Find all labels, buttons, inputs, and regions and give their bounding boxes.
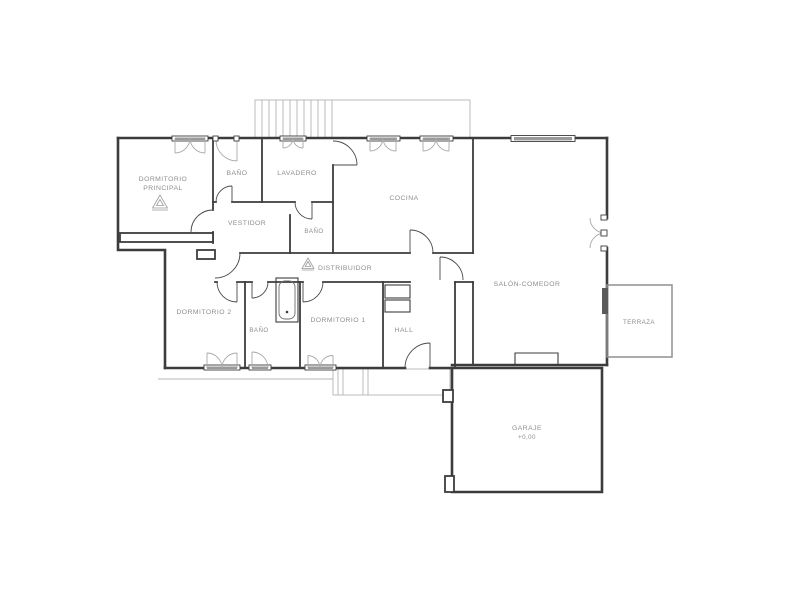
french-door-salon bbox=[590, 215, 607, 251]
window-cocina-1 bbox=[367, 136, 400, 151]
window-bano-low bbox=[249, 352, 271, 370]
room-label-hall: HALL bbox=[395, 327, 414, 334]
door-lavadero-cocina bbox=[333, 141, 357, 165]
room-label-vestidor: VESTIDOR bbox=[228, 220, 266, 227]
room-label-garaje-level: +0,00 bbox=[518, 434, 536, 441]
bathtub bbox=[276, 278, 298, 322]
garage-step-notch-bottom bbox=[445, 476, 454, 492]
room-label-bano-low: BAÑO bbox=[249, 327, 268, 334]
door-bano-top bbox=[216, 186, 232, 202]
window-cocina-2 bbox=[420, 136, 453, 151]
window-dorm2 bbox=[204, 353, 240, 370]
window-dorm1 bbox=[305, 355, 336, 370]
room-label-lavadero: LAVADERO bbox=[277, 170, 317, 177]
room-label-distribuidor: DISTRIBUIDOR bbox=[318, 265, 372, 272]
room-label-salon-comedor: SALÓN-COMEDOR bbox=[494, 279, 561, 288]
room-label-dormitorio-principal-1: DORMITORIO bbox=[139, 176, 188, 183]
door-bano-mid bbox=[295, 202, 312, 219]
door-dorm1 bbox=[303, 282, 323, 302]
door-dormppal bbox=[191, 210, 213, 232]
door-corridor-salon bbox=[440, 257, 463, 280]
door-bano-low bbox=[252, 282, 268, 298]
room-label-garaje: GARAJE bbox=[512, 425, 542, 432]
room-label-dormitorio-2: DORMITORIO 2 bbox=[176, 309, 231, 316]
floor-plan-drawing: DORMITORIO PRINCIPAL BAÑO LAVADERO VESTI… bbox=[0, 0, 790, 600]
floor-plan-canvas: DORMITORIO PRINCIPAL BAÑO LAVADERO VESTI… bbox=[0, 0, 790, 600]
room-labels: DORMITORIO PRINCIPAL BAÑO LAVADERO VESTI… bbox=[139, 168, 656, 441]
door-vestidor-corridor bbox=[215, 253, 240, 278]
level-marker-icon bbox=[152, 195, 168, 210]
terraza-window-bar bbox=[602, 288, 608, 314]
room-label-cocina: COCINA bbox=[389, 195, 418, 202]
window-lavadero bbox=[280, 136, 306, 148]
hall-closet-shelves bbox=[385, 285, 410, 312]
garage-step-notch-top bbox=[443, 390, 453, 402]
door-bano-top-exterior bbox=[213, 136, 239, 161]
level-marker-icon bbox=[302, 258, 314, 270]
window-dormppal bbox=[172, 136, 208, 153]
room-label-terraza: TERRAZA bbox=[623, 319, 655, 326]
entry-porch-steps bbox=[158, 369, 450, 395]
wall-dormppal-bottom bbox=[120, 233, 213, 242]
room-label-dormitorio-principal-2: PRINCIPAL bbox=[143, 185, 182, 192]
stairs-top bbox=[255, 100, 470, 138]
door-hall-entrance bbox=[405, 343, 430, 368]
wall-corridor-left-stub bbox=[197, 250, 215, 259]
door-cocina bbox=[410, 230, 433, 253]
room-label-dormitorio-1: DORMITORIO 1 bbox=[310, 317, 365, 324]
room-label-bano-mid: BAÑO bbox=[304, 228, 323, 235]
fireplace-step bbox=[515, 353, 558, 365]
window-salon bbox=[511, 136, 575, 142]
door-dorm2 bbox=[217, 282, 237, 302]
room-label-bano-top: BAÑO bbox=[226, 168, 247, 177]
